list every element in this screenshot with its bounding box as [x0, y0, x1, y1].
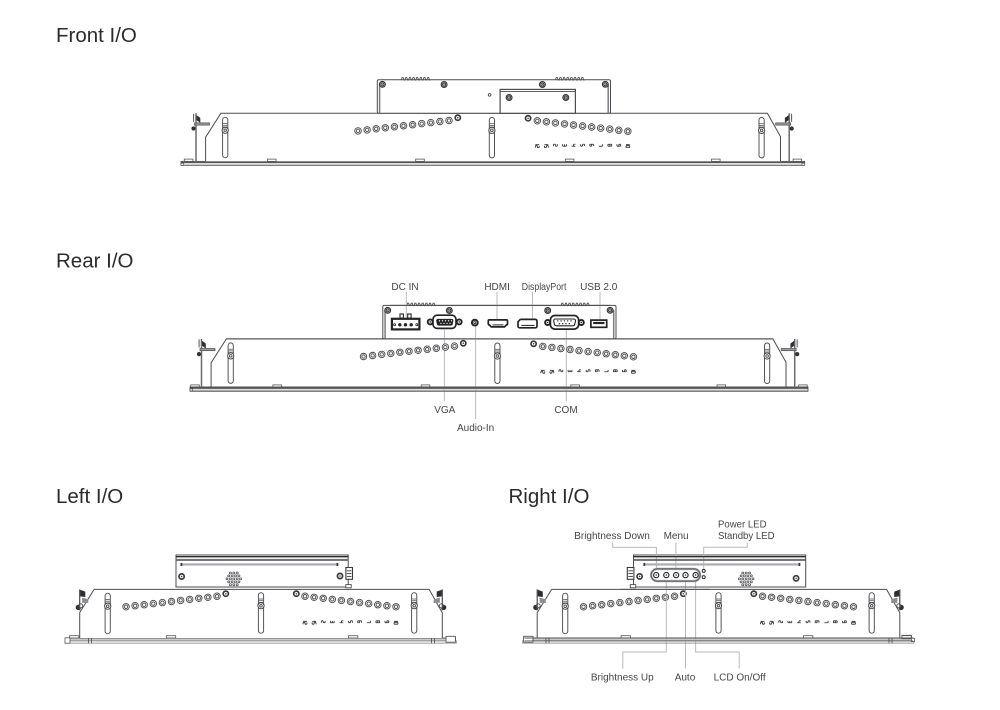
svg-text:Standby LED: Standby LED — [718, 531, 775, 542]
svg-text:Menu: Menu — [664, 531, 689, 542]
svg-text:Brightness Down: Brightness Down — [574, 531, 650, 542]
svg-text:DisplayPort: DisplayPort — [522, 282, 567, 293]
svg-text:Left I/O: Left I/O — [56, 485, 123, 508]
svg-text:Auto: Auto — [675, 672, 696, 683]
svg-text:Front I/O: Front I/O — [56, 24, 137, 47]
svg-text:LCD On/Off: LCD On/Off — [714, 672, 766, 683]
svg-text:COM: COM — [554, 405, 577, 416]
svg-text:USB 2.0: USB 2.0 — [580, 282, 618, 293]
svg-text:HDMI: HDMI — [484, 282, 510, 293]
svg-text:Brightness Up: Brightness Up — [591, 672, 654, 683]
svg-text:Right I/O: Right I/O — [509, 485, 590, 508]
svg-text:Audio-In: Audio-In — [457, 423, 494, 434]
svg-text:VGA: VGA — [434, 405, 455, 416]
svg-text:Rear I/O: Rear I/O — [56, 250, 133, 273]
svg-text:DC IN: DC IN — [391, 282, 418, 293]
svg-text:Power LED: Power LED — [718, 519, 767, 530]
